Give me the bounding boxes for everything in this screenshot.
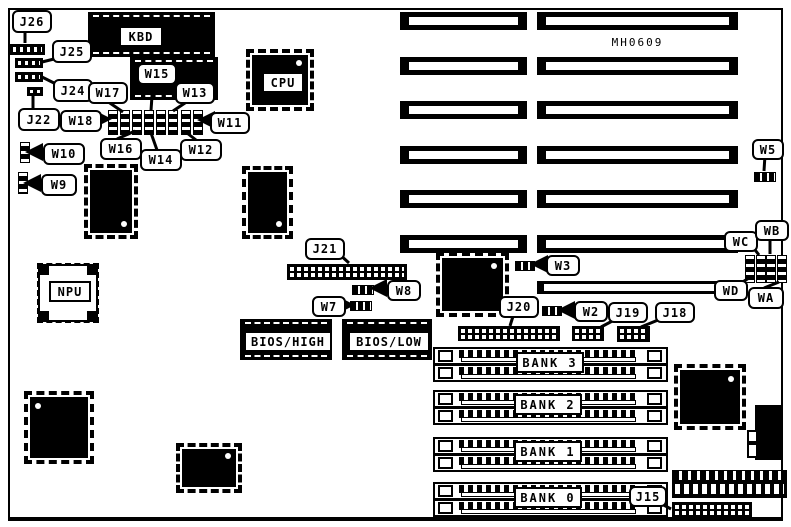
wa-callout: WA — [748, 287, 784, 309]
j15-callout: J15 — [629, 486, 667, 507]
j21-callout: J21 — [305, 238, 345, 260]
w7-callout: W7 — [312, 296, 346, 317]
bank1-label: BANK 1 — [514, 441, 582, 462]
w12-callout: W12 — [180, 139, 222, 161]
j20-callout: J20 — [499, 296, 539, 318]
callout-tails — [0, 0, 791, 527]
j22-callout: J22 — [18, 108, 60, 131]
w18-callout: W18 — [60, 110, 102, 132]
bank3-label: BANK 3 — [516, 352, 584, 373]
w13-callout: W13 — [175, 82, 215, 104]
j25-callout: J25 — [52, 40, 92, 63]
j26-callout: J26 — [12, 10, 52, 33]
wc-callout: WC — [724, 231, 758, 252]
bank2-label: BANK 2 — [514, 394, 582, 415]
w8-callout: W8 — [387, 280, 421, 301]
wb-callout: WB — [755, 220, 789, 241]
j19-callout: J19 — [608, 302, 648, 323]
w14-callout: W14 — [140, 149, 182, 171]
w3-callout: W3 — [546, 255, 580, 276]
w9-callout: W9 — [41, 174, 77, 196]
j18-callout: J18 — [655, 302, 695, 323]
w16-callout: W16 — [100, 138, 142, 160]
w10-callout: W10 — [43, 143, 85, 165]
w5-callout: W5 — [752, 139, 784, 160]
w17-callout: W17 — [88, 82, 128, 104]
w2-callout: W2 — [574, 301, 608, 322]
w15-callout: W15 — [137, 63, 177, 85]
motherboard-diagram: MH0609 KBD CPU NPU BIOS/HIGH BIOS/LOW — [0, 0, 791, 527]
wd-callout: WD — [714, 280, 748, 301]
bank0-label: BANK 0 — [514, 487, 582, 508]
j24-callout: J24 — [53, 79, 93, 102]
w11-callout: W11 — [210, 112, 250, 134]
